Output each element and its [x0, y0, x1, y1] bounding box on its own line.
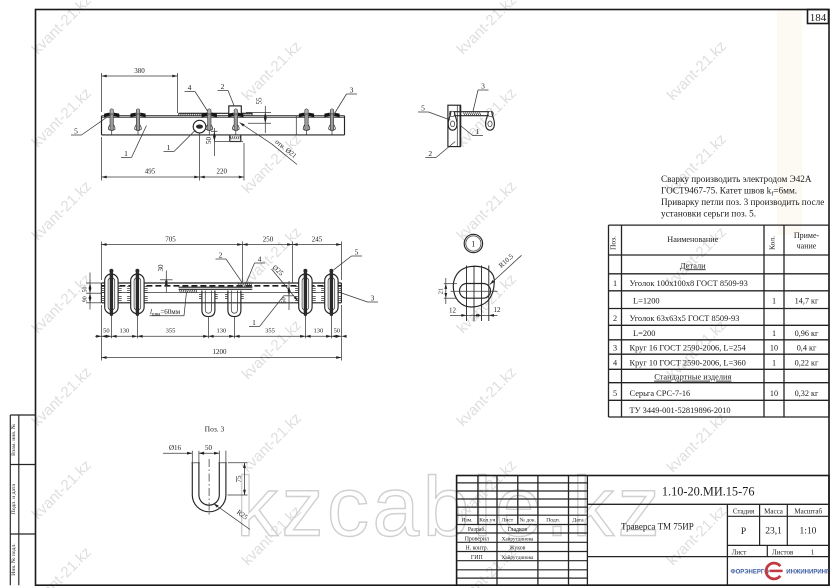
svg-text:355: 355 [166, 328, 176, 335]
svg-text:Кол.: Кол. [768, 236, 777, 250]
svg-text:1: 1 [124, 149, 128, 158]
svg-text:Гладков: Гладков [508, 527, 528, 533]
svg-text:Масштаб: Масштаб [794, 508, 822, 516]
svg-text:1: 1 [167, 143, 171, 152]
svg-text:50: 50 [205, 137, 213, 145]
svg-text:чание: чание [797, 242, 817, 251]
svg-text:5: 5 [355, 248, 359, 257]
svg-text:Подп. и дата: Подп. и дата [11, 484, 17, 515]
svg-text:kvant-21.kz: kvant-21.kz [29, 85, 95, 151]
svg-text:1: 1 [772, 297, 776, 306]
svg-text:1: 1 [252, 318, 256, 327]
svg-text:130: 130 [120, 328, 130, 335]
svg-text:Проверил: Проверил [465, 537, 489, 543]
svg-text:90: 90 [83, 296, 89, 302]
svg-text:Круг 10 ГОСТ 2590-2006, L=360: Круг 10 ГОСТ 2590-2006, L=360 [630, 358, 746, 367]
svg-text:kvant-21.kz: kvant-21.kz [239, 224, 305, 290]
svg-text:Лист: Лист [502, 518, 514, 524]
svg-text:kvant-21.kz: kvant-21.kz [454, 178, 520, 244]
svg-text:Взам. инв. №: Взам. инв. № [11, 423, 17, 456]
svg-text:55: 55 [256, 97, 264, 105]
svg-text:2: 2 [219, 251, 223, 260]
svg-text:ГИП: ГИП [471, 555, 484, 561]
svg-text:Масса: Масса [764, 508, 784, 516]
svg-text:1:10: 1:10 [800, 527, 817, 537]
svg-text:355: 355 [265, 328, 275, 335]
svg-text:ИНЖИНИРИНГ: ИНЖИНИРИНГ [786, 569, 830, 575]
svg-text:21: 21 [437, 288, 444, 295]
svg-text:kvant-21.kz: kvant-21.kz [29, 544, 95, 588]
svg-text:2: 2 [613, 314, 617, 323]
svg-text:5: 5 [613, 389, 617, 398]
svg-text:Подп.: Подп. [546, 518, 561, 524]
svg-text:2: 2 [428, 149, 432, 158]
svg-text:kvant-21.kz: kvant-21.kz [454, 364, 520, 430]
svg-text:kvant-21.kz: kvant-21.kz [29, 364, 95, 430]
svg-text:kvant-21.kz: kvant-21.kz [29, 0, 95, 58]
svg-text:Уголок 100x100x8 ГОСТ 8509-93: Уголок 100x100x8 ГОСТ 8509-93 [630, 279, 748, 288]
svg-text:Хайрутдинова: Хайрутдинова [502, 536, 534, 543]
svg-text:30: 30 [157, 264, 165, 272]
svg-text:245: 245 [312, 235, 323, 243]
svg-text:Приме-: Приме- [794, 231, 820, 240]
svg-text:kvant-21.kz: kvant-21.kz [664, 410, 730, 476]
svg-text:0,32 кг: 0,32 кг [795, 389, 819, 398]
svg-text:1: 1 [471, 240, 475, 249]
svg-text:ГОСТ9467-75. Катет швов kf=6мм: ГОСТ9467-75. Катет швов kf=6мм. [661, 186, 797, 198]
svg-text:kvant-21.kz: kvant-21.kz [664, 503, 730, 569]
svg-text:2: 2 [221, 82, 225, 91]
svg-text:50: 50 [83, 287, 89, 293]
svg-text:kvant-21.kz: kvant-21.kz [29, 178, 95, 244]
svg-text:Сварку производить электродом: Сварку производить электродом Э42А [661, 174, 812, 184]
svg-text:Разраб.: Разраб. [468, 526, 487, 533]
svg-text:50: 50 [334, 328, 341, 335]
svg-text:kvant-21.kz: kvant-21.kz [239, 38, 305, 104]
svg-text:R10.5: R10.5 [497, 252, 515, 270]
svg-text:1200: 1200 [213, 348, 228, 356]
svg-text:Стадия: Стадия [733, 508, 755, 516]
svg-text:Поз.: Поз. [609, 236, 618, 250]
svg-text:kvant-21.kz: kvant-21.kz [454, 271, 520, 337]
svg-text:Детали: Детали [680, 261, 706, 270]
svg-text:5: 5 [74, 127, 78, 136]
svg-text:3: 3 [371, 294, 375, 303]
svg-text:12: 12 [494, 306, 502, 314]
svg-text:12: 12 [449, 306, 457, 314]
svg-text:5: 5 [421, 103, 425, 112]
svg-text:220: 220 [217, 167, 228, 175]
svg-text:ФОРЭНЕРГО: ФОРЭНЕРГО [731, 569, 770, 575]
svg-text:установки серьги поз. 5.: установки серьги поз. 5. [661, 209, 756, 219]
svg-text:kvant-21.kz: kvant-21.kz [239, 131, 305, 197]
svg-text:705: 705 [165, 235, 176, 243]
svg-text:380: 380 [134, 67, 145, 75]
svg-text:№ док.: № док. [520, 518, 537, 524]
svg-text:Дата: Дата [572, 518, 584, 524]
svg-text:Кол.уч: Кол.уч [479, 518, 495, 524]
svg-text:kvant-21.kz: kvant-21.kz [454, 0, 520, 58]
svg-text:3: 3 [481, 81, 485, 90]
svg-text:50: 50 [103, 328, 110, 335]
svg-text:1: 1 [811, 548, 815, 556]
svg-text:250: 250 [263, 235, 274, 243]
svg-text:14,7 кг: 14,7 кг [795, 297, 819, 306]
svg-text:Жуков: Жуков [509, 546, 525, 552]
svg-text:kvant-21.kz: kvant-21.kz [664, 38, 730, 104]
svg-text:Серьга СРС-7-16: Серьга СРС-7-16 [630, 389, 691, 398]
svg-text:Поз. 3: Поз. 3 [205, 425, 225, 434]
svg-text:kzcable.kz: kzcable.kz [236, 460, 663, 554]
svg-text:Ø25: Ø25 [271, 264, 286, 278]
svg-text:kvant-21.kz: kvant-21.kz [29, 457, 95, 523]
svg-text:0,22 кг: 0,22 кг [795, 358, 819, 367]
svg-text:50: 50 [205, 444, 213, 452]
svg-text:3: 3 [350, 86, 354, 95]
svg-text:0,96 кг: 0,96 кг [795, 329, 819, 338]
svg-text:184: 184 [810, 12, 827, 24]
svg-text:Наименование: Наименование [667, 235, 718, 244]
svg-text:23,1: 23,1 [765, 527, 782, 537]
svg-text:Изм.: Изм. [461, 518, 473, 524]
svg-text:Ø16: Ø16 [169, 444, 182, 452]
svg-text:Уголок 63x63x5 ГОСТ 8509-93: Уголок 63x63x5 ГОСТ 8509-93 [630, 314, 740, 323]
svg-text:130: 130 [217, 328, 227, 335]
svg-text:10: 10 [770, 389, 778, 398]
svg-text:1: 1 [772, 358, 776, 367]
svg-text:130: 130 [314, 328, 324, 335]
svg-text:Стандартные изделия: Стандартные изделия [654, 373, 731, 382]
svg-text:kvant-21.kz: kvant-21.kz [29, 271, 95, 337]
svg-text:Лист: Лист [732, 548, 747, 556]
svg-text:10: 10 [770, 344, 778, 353]
svg-text:L=200: L=200 [633, 329, 655, 338]
svg-text:Инв. № подл.: Инв. № подл. [11, 543, 17, 576]
svg-text:Хайрутдинова: Хайрутдинова [502, 554, 534, 561]
svg-text:Р: Р [741, 527, 746, 537]
svg-text:Круг 16 ГОСТ 2590-2006, L=254: Круг 16 ГОСТ 2590-2006, L=254 [630, 344, 747, 353]
svg-text:ТУ 3449-001-52819896-2010: ТУ 3449-001-52819896-2010 [630, 406, 731, 415]
svg-text:4: 4 [188, 83, 192, 92]
svg-text:Листов: Листов [772, 548, 794, 556]
svg-text:1: 1 [613, 279, 617, 288]
svg-text:1: 1 [772, 329, 776, 338]
svg-text:1: 1 [476, 127, 480, 136]
svg-text:75: 75 [235, 475, 243, 483]
svg-text:3: 3 [613, 344, 617, 353]
svg-text:4: 4 [613, 358, 617, 367]
svg-text:495: 495 [145, 167, 156, 175]
svg-text:L=1200: L=1200 [633, 297, 660, 306]
svg-text:1.10-20.МИ.15-76: 1.10-20.МИ.15-76 [662, 485, 755, 499]
svg-text:Приварку петли поз. 3 производ: Приварку петли поз. 3 производить после [661, 197, 824, 207]
svg-text:4: 4 [258, 255, 262, 264]
svg-text:Н. контр.: Н. контр. [466, 546, 489, 552]
svg-text:Траверса ТМ 75ИР: Траверса ТМ 75ИР [621, 522, 694, 532]
svg-text:0,4 кг: 0,4 кг [797, 344, 817, 353]
